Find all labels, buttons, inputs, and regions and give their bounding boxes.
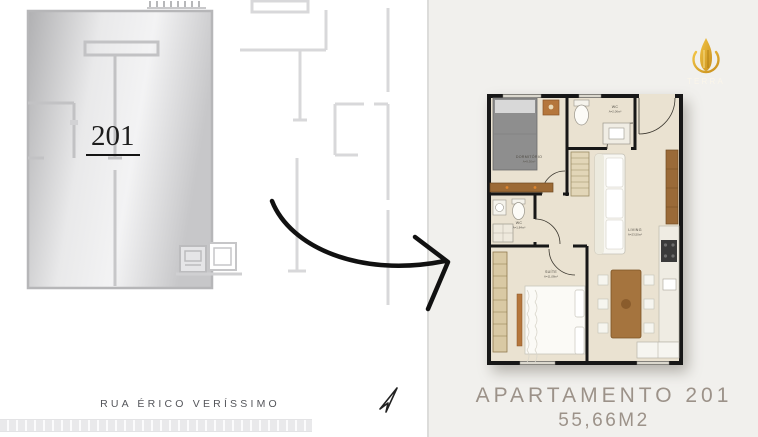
- poster-root: 201 RUA ÉRICO VERÍSSIMO: [0, 0, 758, 437]
- living-label: LIVING: [628, 228, 642, 232]
- apartment-floor-plan: DORMITÓRIO A=9,30m² WC A=2,06m²: [487, 94, 683, 365]
- entry-door-gap: [639, 94, 675, 98]
- wc-suite-area: A=1,84m²: [513, 226, 526, 230]
- caption-title: APARTAMENTO 201: [450, 384, 758, 408]
- hall-wardrobe: [571, 152, 589, 196]
- caption-area: 55,66M2: [450, 410, 758, 432]
- dormitorio-label: DORMITÓRIO: [516, 154, 542, 159]
- transition-arrow-icon: [255, 185, 465, 320]
- unit-number-label: 201: [86, 120, 140, 156]
- apartment-caption: APARTAMENTO 201 55,66M2: [450, 384, 758, 432]
- wc-top-area: A=2,06m²: [609, 110, 622, 114]
- living-area: A=23,50m²: [628, 233, 642, 237]
- logo-flame-icon: [694, 38, 719, 72]
- cursor-icon: [376, 385, 404, 415]
- suite-area: A=11,08m²: [544, 275, 558, 279]
- entry-planters: [176, 243, 242, 274]
- balcony-tick-marks: [147, 1, 206, 8]
- street-name-label: RUA ÉRICO VERÍSSIMO: [70, 398, 310, 410]
- wc-top-label: WC: [612, 105, 619, 109]
- brand-logo: TERRA: [682, 32, 730, 90]
- suite-label: SUÍTE: [545, 270, 557, 274]
- logo-text: TERRA: [687, 77, 725, 86]
- dormitorio-area: A=9,30m²: [523, 160, 536, 164]
- sidewalk-strip: [0, 419, 312, 432]
- wc-suite-label: WC: [516, 221, 523, 225]
